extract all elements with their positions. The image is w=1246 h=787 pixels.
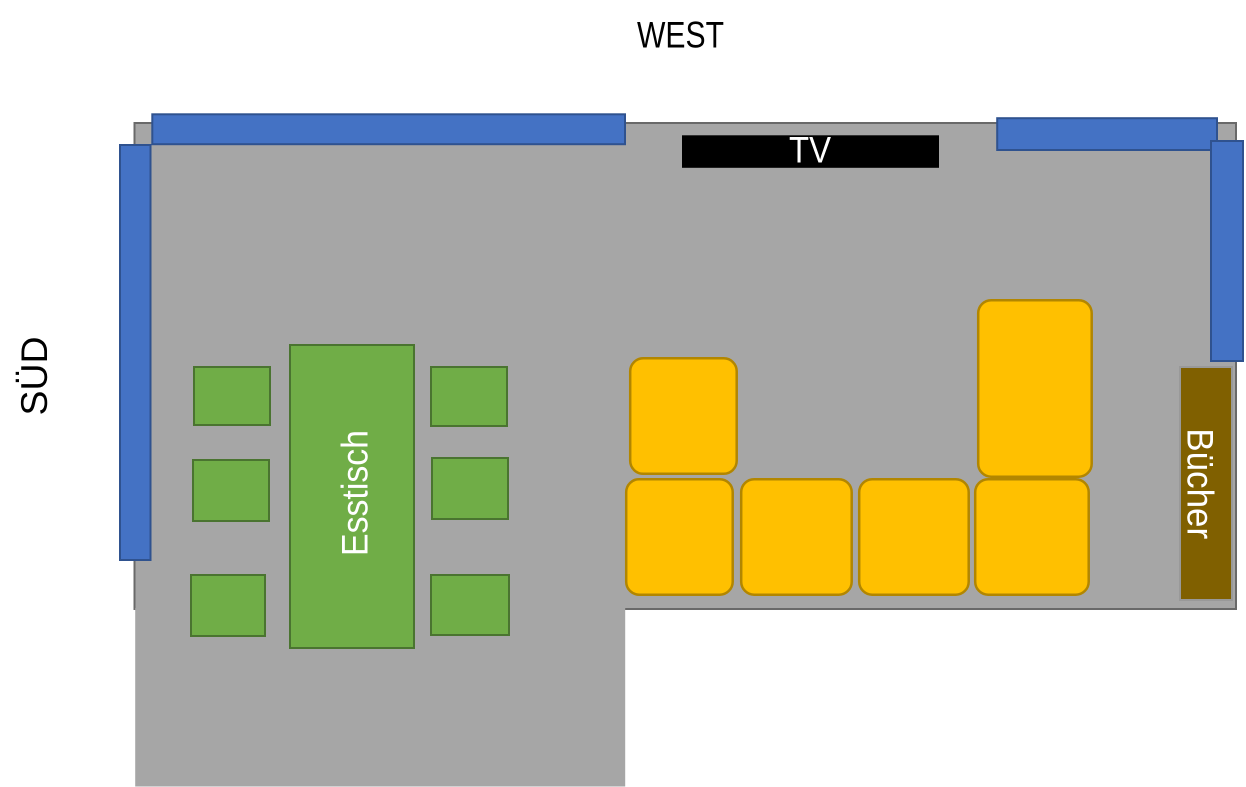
svg-text:SÜD: SÜD	[14, 337, 55, 416]
svg-text:Esstisch: Esstisch	[335, 430, 376, 556]
svg-text:TV: TV	[789, 130, 831, 171]
svg-text:Bücher: Bücher	[1180, 428, 1221, 539]
svg-text:WEST: WEST	[637, 15, 724, 56]
